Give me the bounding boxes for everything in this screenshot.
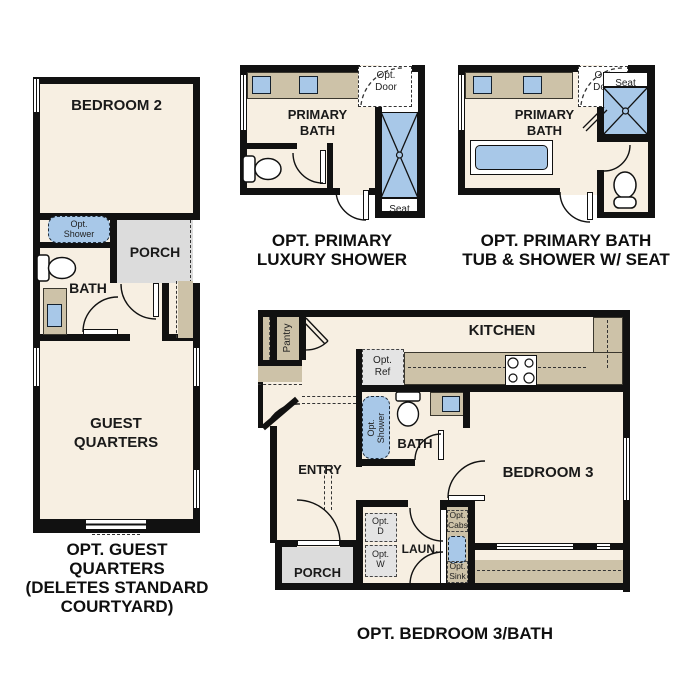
door-leaf: [320, 150, 326, 184]
door-arc-icon: [560, 192, 590, 222]
wall: [463, 392, 470, 428]
wall: [299, 317, 306, 360]
wall: [648, 65, 655, 218]
wall: [597, 135, 648, 142]
sink-icon: [473, 76, 492, 94]
room-label-porch: PORCH: [117, 244, 193, 261]
opt-shower-label: Opt. Shower: [366, 400, 386, 456]
caption-bedroom3-bath: OPT. BEDROOM 3/BATH: [330, 624, 580, 643]
opening-dashed-line: [331, 465, 334, 510]
wall: [356, 459, 415, 466]
door-leaf: [587, 192, 593, 220]
room-label-bedroom3: BEDROOM 3: [493, 464, 603, 482]
plan-guest-quarters: Opt. Shower BEDROOM 2 PORCH BATH GUEST Q…: [33, 77, 200, 540]
counter: [258, 366, 302, 382]
room-label-bedroom2: BEDROOM 2: [40, 97, 193, 115]
window: [193, 470, 200, 508]
seat-label: Seat: [389, 204, 410, 215]
opt-dryer-area: Opt. D: [365, 513, 397, 542]
shower-seat: Seat: [381, 198, 418, 212]
room-label-bath: BATH: [58, 280, 118, 297]
opening-dashed-line: [302, 396, 356, 399]
door-leaf: [153, 283, 159, 317]
counter-dashed-edge: [258, 384, 302, 387]
caption-luxury-shower: OPT. PRIMARY LUXURY SHOWER: [237, 231, 427, 269]
wall: [275, 583, 360, 590]
window: [33, 79, 40, 112]
window-dash: [92, 534, 140, 537]
patio-dashed-line: [477, 570, 621, 573]
wall: [162, 281, 169, 338]
opening-dashed-line: [324, 465, 327, 510]
wall: [240, 143, 297, 149]
door-leaf: [83, 329, 118, 335]
wall: [458, 188, 560, 195]
wall: [418, 65, 425, 218]
wall: [40, 334, 130, 341]
window: [623, 438, 630, 500]
caption-guest-quarters: OPT. GUEST QUARTERS (DELETES STANDARD CO…: [18, 540, 216, 616]
wall: [369, 188, 375, 195]
opening-dashed-line: [302, 403, 356, 406]
window: [497, 543, 573, 550]
wall: [263, 310, 630, 317]
wall: [270, 317, 277, 360]
wall: [193, 77, 200, 533]
wall: [33, 77, 200, 84]
sink-icon: [448, 536, 466, 563]
plan-tub-shower: Opt. Door Seat PRIMARY BATH: [458, 65, 675, 225]
sink-icon: [252, 76, 271, 94]
shower-fixture: [381, 112, 418, 198]
window: [193, 348, 200, 386]
opt-cabs-label: Opt. Cabs: [447, 510, 468, 532]
porch-opening: [193, 220, 200, 283]
room-label-entry: ENTRY: [280, 462, 360, 477]
sink-icon: [442, 396, 460, 412]
wall: [470, 543, 497, 550]
window: [240, 75, 247, 130]
wall: [258, 382, 263, 428]
wall: [270, 426, 277, 543]
window: [85, 519, 147, 530]
sink-icon: [47, 304, 62, 327]
stove-icon: [505, 355, 537, 386]
pantry-shelf: [263, 317, 270, 360]
wall: [458, 65, 580, 72]
laundry-door-opening: [440, 510, 447, 583]
wall: [356, 500, 408, 507]
wall: [356, 385, 630, 392]
wall: [110, 213, 117, 283]
room-label-primary-bath: PRIMARY BATH: [270, 107, 365, 139]
sink-icon: [523, 76, 542, 94]
opt-washer-area: Opt. W: [365, 545, 397, 577]
plan-bedroom3-bath: Pantry KITCHEN Opt. Ref Opt. Shower BATH: [258, 308, 630, 590]
wall: [597, 212, 655, 218]
opt-shower-fixture: Opt. Shower: [48, 216, 110, 243]
plan-luxury-shower: Opt. Door Seat PRIMARY BATH: [240, 65, 425, 225]
cabinet-dashed-line: [607, 320, 610, 368]
door-leaf: [448, 495, 485, 501]
wall: [356, 500, 363, 590]
closet-dashed-edge: [176, 281, 179, 338]
closet-area: [178, 281, 193, 338]
opt-door-area: Opt. Door: [358, 66, 412, 107]
room-label-porch: PORCH: [282, 565, 353, 580]
door-leaf: [297, 540, 340, 546]
window: [597, 543, 610, 550]
exterior-area: [258, 543, 275, 590]
wall: [470, 583, 630, 590]
wall: [327, 143, 333, 190]
opt-sink-label: Opt. Sink: [447, 561, 468, 583]
room-label-kitchen: KITCHEN: [452, 322, 552, 340]
floorplan-sheet: Opt. Shower BEDROOM 2 PORCH BATH GUEST Q…: [0, 0, 687, 687]
wall: [597, 170, 604, 212]
room-label-bath: BATH: [393, 436, 437, 451]
caption-tub-shower: OPT. PRIMARY BATH TUB & SHOWER W/ SEAT: [458, 231, 674, 269]
shower-seat: Seat: [603, 72, 648, 87]
room-label-pantry: Pantry: [282, 310, 294, 366]
wall: [240, 188, 340, 195]
window: [33, 348, 40, 386]
door-leaf: [438, 430, 444, 460]
window: [458, 75, 465, 130]
shower-fixture: [603, 87, 648, 135]
cabinet-dashed-line: [408, 367, 586, 370]
wall: [33, 77, 40, 533]
wall: [240, 65, 360, 72]
door-leaf: [363, 190, 369, 220]
room-label-guest-quarters: GUEST QUARTERS: [46, 414, 186, 452]
floor-area: [604, 140, 648, 212]
wall: [356, 583, 475, 590]
room-label-primary-bath: PRIMARY BATH: [497, 107, 592, 139]
bathtub-fixture: [475, 145, 548, 170]
wall: [573, 543, 597, 550]
room-label-laundry: LAUN.: [399, 542, 441, 556]
sink-icon: [299, 76, 318, 94]
opt-shower-label: Opt.: [70, 219, 87, 229]
wall: [610, 543, 623, 550]
opt-ref-area: Opt. Ref: [362, 349, 404, 388]
